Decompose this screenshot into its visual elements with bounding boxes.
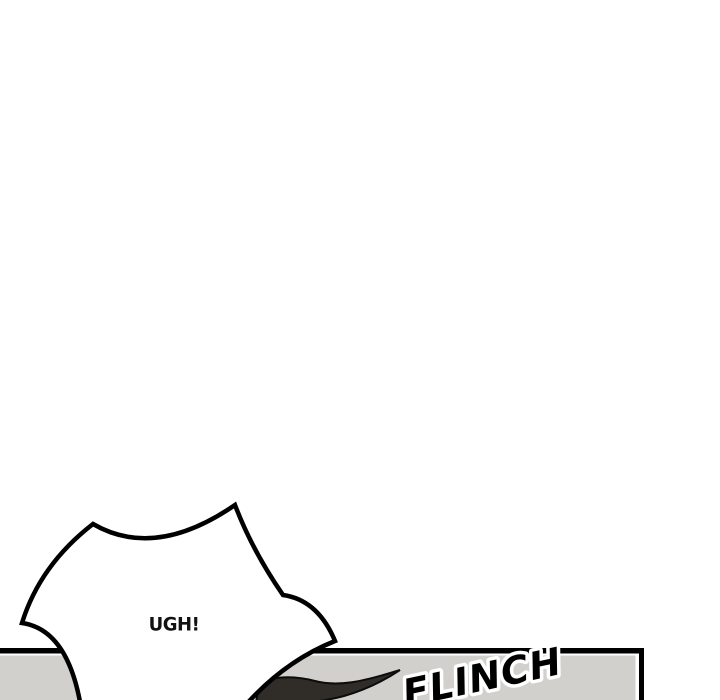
speech-bubble-text: UGH!	[147, 615, 201, 636]
comic-artwork: FLINCH	[0, 0, 720, 700]
comic-page: FLINCH UGH!	[0, 0, 720, 700]
